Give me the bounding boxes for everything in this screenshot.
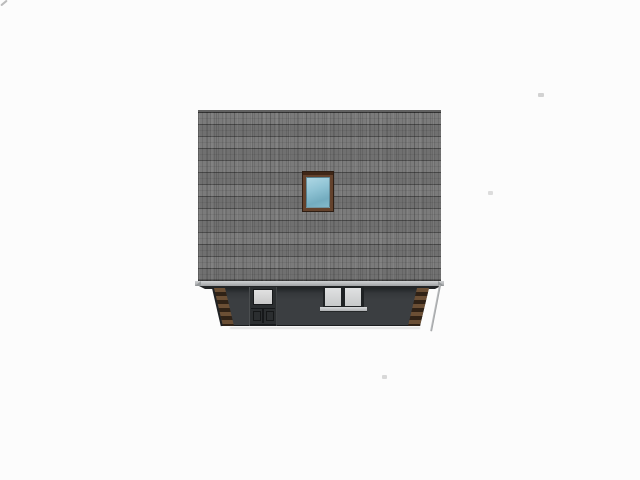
downspout bbox=[430, 285, 441, 332]
artifact-speck bbox=[488, 191, 493, 195]
door-panel-right bbox=[266, 311, 274, 321]
artifact-speck bbox=[382, 375, 387, 379]
artifact-corner-smudge bbox=[0, 0, 7, 6]
fascia-end-left bbox=[195, 281, 201, 286]
artifact-speck bbox=[538, 93, 544, 97]
double-window bbox=[323, 286, 364, 307]
entry-door bbox=[249, 287, 277, 326]
door-panel-left bbox=[253, 311, 261, 321]
window-sill bbox=[320, 307, 367, 311]
ground-shadow bbox=[230, 327, 420, 329]
door-center-stile bbox=[262, 308, 264, 323]
eave-fascia bbox=[195, 281, 444, 286]
render-canvas bbox=[0, 0, 640, 480]
window-pane-right bbox=[345, 288, 361, 306]
skylight-glass bbox=[306, 177, 330, 208]
door-glass-panel bbox=[253, 289, 273, 305]
window-pane-left bbox=[325, 288, 341, 306]
skylight-window bbox=[302, 171, 334, 212]
